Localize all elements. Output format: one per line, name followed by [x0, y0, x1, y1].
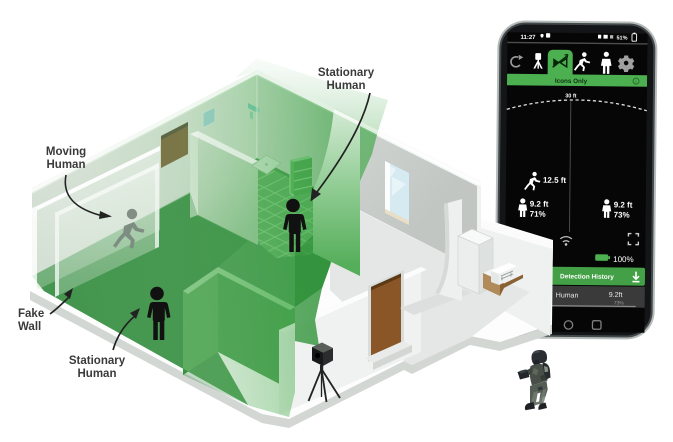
svg-text:Human: Human: [78, 368, 117, 380]
svg-text:100%: 100%: [613, 255, 634, 264]
svg-text:Stationary: Stationary: [69, 355, 126, 367]
svg-text:Detection History: Detection History: [560, 273, 614, 281]
svg-text:Human: Human: [556, 292, 579, 299]
svg-text:Moving: Moving: [46, 146, 86, 158]
svg-text:Icons Only: Icons Only: [555, 78, 588, 85]
svg-text:9.2ft: 9.2ft: [609, 292, 623, 299]
svg-text:9.2 ft: 9.2 ft: [614, 200, 633, 209]
svg-text:Human: Human: [47, 159, 86, 171]
svg-text:12.5 ft: 12.5 ft: [543, 176, 567, 185]
svg-text:73%: 73%: [614, 300, 625, 306]
svg-text:71%: 71%: [530, 210, 546, 219]
svg-text:Fake: Fake: [18, 308, 44, 320]
svg-text:Wall: Wall: [18, 321, 41, 333]
svg-text:i: i: [635, 79, 636, 85]
svg-text:9.2 ft: 9.2 ft: [530, 200, 549, 209]
svg-text:Human: Human: [327, 80, 366, 92]
svg-text:11:27: 11:27: [520, 35, 536, 41]
svg-text:Stationary: Stationary: [318, 67, 375, 79]
svg-text:51%: 51%: [616, 35, 627, 41]
svg-text:30 ft: 30 ft: [565, 93, 577, 99]
svg-text:73%: 73%: [614, 210, 630, 219]
